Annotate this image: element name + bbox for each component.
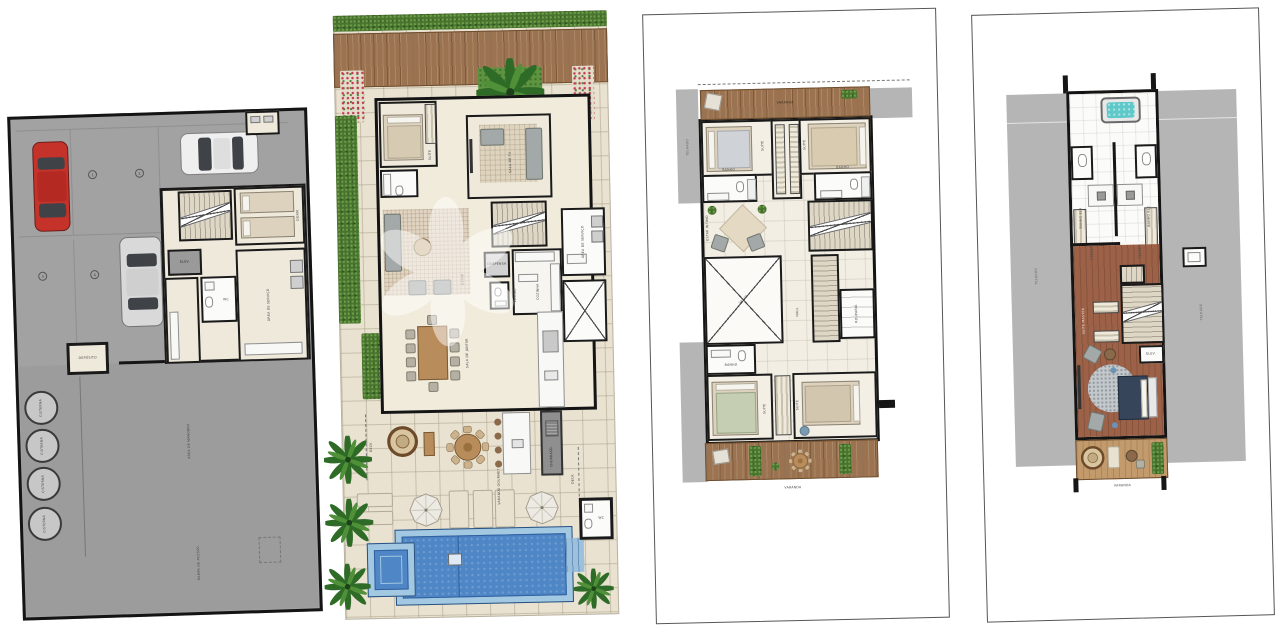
room-label: ROUPARIA <box>855 304 859 322</box>
hanging-chair <box>385 424 420 459</box>
grill-grate <box>545 420 558 436</box>
room-label: BANHO ELA <box>1079 208 1083 229</box>
wardrobe-row <box>1093 301 1119 314</box>
gourmet-counter <box>502 412 531 475</box>
dryer <box>290 276 303 289</box>
vanity <box>820 190 842 198</box>
room-label: SUÍTE MASTER <box>1082 308 1086 334</box>
tank-label: CISTERNA <box>40 437 44 455</box>
tub-water <box>1106 102 1134 119</box>
roof-label: TELHADO <box>1200 303 1204 320</box>
vanity <box>711 349 731 357</box>
wardrobe-row <box>1093 330 1119 343</box>
balcony-planter <box>1151 442 1164 474</box>
maneuver-yard-floor <box>19 357 319 616</box>
car-rear-window <box>232 136 244 169</box>
room-label: SUÍTE <box>796 400 800 411</box>
vanity-right <box>1117 183 1144 206</box>
car-windshield <box>37 157 64 170</box>
counter-sink <box>512 439 524 448</box>
bistro-chair <box>1136 459 1145 468</box>
double-bed <box>801 381 860 426</box>
shower <box>747 179 756 200</box>
dining-chair <box>406 371 416 381</box>
room-label: ELEV. <box>180 260 190 264</box>
wardrobe <box>774 375 791 435</box>
sun-lounger <box>473 490 494 528</box>
pantry-nook <box>164 277 201 364</box>
room-label: WC <box>598 517 604 521</box>
sink-counter <box>204 281 214 290</box>
stair-cross-mark <box>178 203 234 228</box>
spot-number-text: 4 <box>93 273 95 277</box>
deck-planter <box>749 446 762 476</box>
car-silver <box>119 236 164 327</box>
car-rear-window <box>128 297 158 310</box>
room-label: SUÍTE <box>761 140 765 151</box>
stairs-upper-flight <box>1120 264 1145 284</box>
shower <box>861 176 870 197</box>
room-label: BANHO <box>722 169 735 173</box>
car-rear-window <box>39 203 66 218</box>
shaft-reserve <box>562 279 607 342</box>
room-label: CLOSET <box>1090 246 1094 260</box>
washer <box>591 215 603 227</box>
cooktop <box>542 330 558 352</box>
room-label: SUÍTE <box>429 150 433 161</box>
room-label: WC <box>223 298 229 302</box>
bathroom <box>200 276 237 323</box>
toilet <box>736 181 744 192</box>
deck-chair <box>712 449 730 465</box>
chaise <box>480 128 504 145</box>
bed-pillow <box>1141 379 1148 417</box>
roof-strip <box>870 87 913 118</box>
bathroom-top-right <box>814 171 873 200</box>
watermark-logo <box>365 190 528 353</box>
car-roof <box>37 171 67 202</box>
outdoor-round-table <box>443 423 492 472</box>
sink <box>1097 191 1106 200</box>
wall-stub <box>1073 478 1078 492</box>
master-bed <box>1118 375 1149 420</box>
car-windshield <box>127 253 157 267</box>
pool-steps <box>566 538 585 572</box>
spot-number-text: 3 <box>41 274 43 278</box>
room-label: COZINHA <box>537 283 541 300</box>
pool-bathroom <box>579 497 614 540</box>
car-red <box>32 141 71 232</box>
utility-closet <box>245 110 280 135</box>
vanity-left <box>1088 184 1115 207</box>
bed-pillow <box>716 383 756 391</box>
spot-number-text: 2 <box>138 171 140 175</box>
pool-water <box>402 533 567 598</box>
bathtub <box>1100 96 1141 123</box>
room-label: ESTAR ÍNTIMO <box>706 215 710 241</box>
stairs <box>178 190 234 242</box>
bed-pillow <box>243 220 251 236</box>
bed-pillow <box>708 131 716 169</box>
bed-duvet <box>716 392 757 434</box>
palm-tree <box>325 498 374 547</box>
deck-label: DECK <box>572 474 576 484</box>
closet-corridor <box>771 119 803 200</box>
stairs-main-flight <box>1120 283 1165 344</box>
shaft-cross-mark <box>564 281 605 340</box>
sun-lounger <box>449 490 470 528</box>
future-equipment-outline <box>258 536 281 563</box>
dining-chair <box>406 357 416 367</box>
dining-chair <box>450 356 460 366</box>
stairs-upper-flight <box>807 199 873 251</box>
bed-pillow <box>859 126 867 165</box>
stairs-lower-flight <box>811 254 841 343</box>
bed-pillow <box>242 195 250 211</box>
wardrobe <box>775 124 787 194</box>
room-label: ÁREA DE SERVIÇO <box>581 225 585 258</box>
gourmet-bench <box>537 311 565 408</box>
bed-headboard <box>1148 377 1158 417</box>
toilet <box>1078 154 1087 167</box>
stair-cross-mark <box>1120 302 1164 322</box>
double-bed <box>711 381 758 436</box>
double-bed <box>383 114 424 161</box>
plan-upper-floor: VARANDA SUÍTE SUÍTE BANHO BANHO <box>642 8 950 625</box>
toilet <box>205 296 213 307</box>
tank-label: CISTERNA <box>43 515 47 533</box>
room-label: HALL <box>796 307 800 316</box>
toilet <box>850 179 858 190</box>
sink <box>1126 191 1135 200</box>
room-label: ELEV. <box>1146 352 1156 356</box>
tank-label: CISTERNA <box>42 475 46 493</box>
car-roof <box>126 268 159 296</box>
room-label: BANHO <box>836 166 849 170</box>
bed-duvet <box>805 385 852 423</box>
area-label: VARANDA GOURMET <box>497 468 501 504</box>
vanity <box>707 192 729 200</box>
stair-cross-mark <box>807 212 873 237</box>
bar-stool <box>494 418 501 425</box>
double-bed <box>808 122 867 169</box>
car-roof <box>213 138 231 170</box>
roof-label: TELHADO <box>1035 268 1039 285</box>
plan-basement-garage: 1 2 3 4 DORM <box>7 107 323 620</box>
car-windshield <box>198 137 212 170</box>
sofa <box>525 128 543 180</box>
room-label: SUÍTE <box>763 403 767 414</box>
washer <box>290 260 303 273</box>
lounge-chair <box>1107 446 1120 468</box>
spot-number-text: 1 <box>91 173 93 177</box>
toilet <box>738 350 746 361</box>
room-label: DORM. <box>296 209 300 221</box>
laundry-counter <box>244 342 302 356</box>
single-bed <box>240 216 295 239</box>
area-label: VARANDA <box>777 101 794 105</box>
palm-tree <box>324 563 371 610</box>
toilet <box>584 519 592 529</box>
pool-step-ledge <box>448 553 462 565</box>
deck-bench <box>704 92 723 111</box>
deck-planter <box>839 444 852 474</box>
hanging-chair <box>1079 445 1106 472</box>
deck-table <box>787 448 814 475</box>
bed-duvet <box>717 130 751 169</box>
entry-deck <box>333 28 608 88</box>
area-label: VARANDA <box>784 486 801 490</box>
roof-label: TELHADO <box>686 139 690 156</box>
palm-tree <box>323 435 372 484</box>
room-label: SUÍTE <box>803 139 807 150</box>
dryer <box>591 230 603 242</box>
toilet <box>1142 152 1151 165</box>
double-bed <box>706 126 753 172</box>
bed-pillow <box>853 385 861 422</box>
wall-stub <box>1161 476 1166 490</box>
equipment-box <box>263 115 273 122</box>
dining-chair <box>428 382 438 392</box>
wall-stub <box>879 400 895 408</box>
vanity <box>584 504 593 513</box>
setback-line <box>698 79 910 85</box>
deck-planter <box>841 90 857 99</box>
bathroom-bottom-left <box>706 344 757 375</box>
console-table <box>423 432 435 456</box>
toilet-cubicle <box>1071 146 1094 181</box>
single-bed <box>240 191 295 214</box>
dining-chair <box>450 370 460 380</box>
area-label: CHURRASQ. <box>550 446 554 467</box>
room-label: CLOSET <box>1138 245 1142 259</box>
floor-plans-canvas: 1 2 3 4 DORM <box>0 0 1280 630</box>
bathroom-top-left <box>702 174 758 203</box>
laundry-room <box>235 248 308 362</box>
roof-hatch <box>1182 247 1207 268</box>
bench-sink <box>544 370 558 380</box>
spa-bench-line <box>380 556 403 584</box>
toilet-cubicle <box>1135 144 1158 179</box>
car-white <box>180 131 259 175</box>
hatch-inner <box>1187 252 1200 262</box>
stair-direction-band <box>1120 301 1165 324</box>
room-label: BANHO ELE <box>1147 206 1151 227</box>
stair-direction-band <box>178 202 234 229</box>
deck-label: DECK <box>370 442 374 452</box>
side-hedge <box>335 115 361 323</box>
kitchen-counter <box>550 263 561 311</box>
patio-umbrella <box>407 491 446 530</box>
wardrobe <box>425 104 437 144</box>
bed-duvet <box>811 127 858 167</box>
room-label: BANHO <box>725 364 738 368</box>
room-label: SALA DE TV <box>509 151 513 172</box>
equipment-box <box>250 116 260 123</box>
stair-direction-band <box>807 211 873 238</box>
bed-pillow <box>387 116 421 124</box>
plan-master-floor: TELHADO TELHADO BANHO ELA BANHO ELE CLOS… <box>971 7 1275 622</box>
counter <box>169 312 180 360</box>
room-label: DEPÓSITO <box>79 356 97 360</box>
tank-label: CISTERNA <box>39 399 43 417</box>
area-label: VARANDA <box>1114 484 1131 488</box>
plan-ground-floor: SUÍTE SALA DE TV DESPENSA LAVABO COZINHA <box>327 10 626 623</box>
palm-tree <box>573 568 614 609</box>
patio-umbrella <box>523 488 562 527</box>
bed-duvet <box>387 125 422 159</box>
